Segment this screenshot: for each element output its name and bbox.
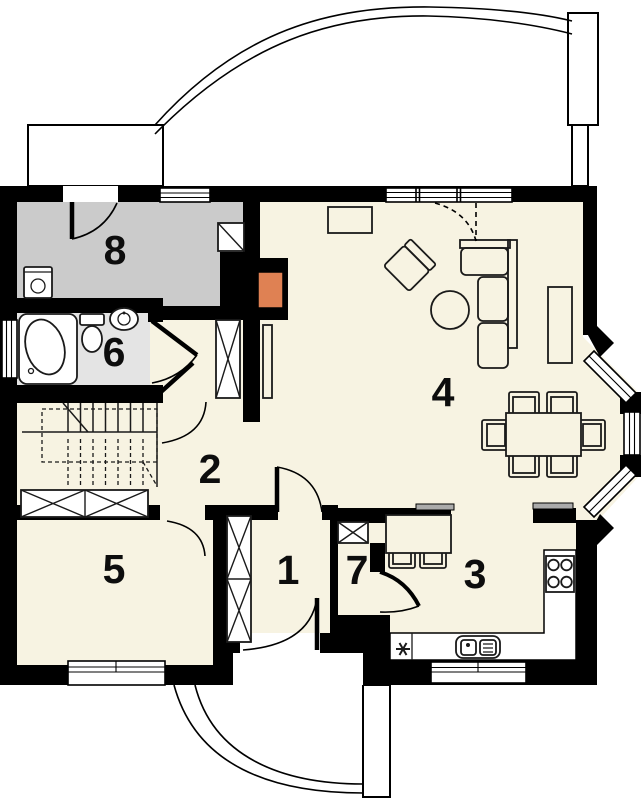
pass-shelf-right [533,503,573,509]
wall-room8-bath-divider [17,298,163,313]
wall-room7-left [330,505,338,633]
porch-pillar [363,685,390,797]
wall-right-upper [583,186,597,335]
utility-fixtures [24,267,52,298]
porch-arc-inner [195,685,363,784]
wall-room7-bottom [330,615,390,633]
washing-machine [24,267,52,298]
terrace-arc-inner [155,16,572,134]
room-label-4: 4 [432,369,455,415]
terrace-chimney-upper [568,13,598,125]
wardrobe-pantry [338,522,368,543]
floor-plan-page: 1 2 3 4 5 6 7 8 [0,0,642,800]
terrace-steps [28,125,163,186]
wall-room7-right-stub [370,543,385,572]
wardrobe-hall-column [216,320,240,398]
washbasin [110,308,138,330]
room-label-6: 6 [103,329,126,375]
room-label-7: 7 [346,547,369,593]
wall-hall-column-lower [243,320,260,422]
floor-plan-canvas: 1 2 3 4 5 6 7 8 [0,0,642,800]
wall-kitchen-top-right [533,508,576,523]
toilet [80,314,104,352]
breakfast-table [386,515,451,553]
pass-shelf-left [416,504,454,510]
room-label-2: 2 [199,446,222,492]
dining-table [506,413,581,456]
corner-shelf-room8 [218,223,244,251]
window-room4-top [386,188,512,202]
window-room8-top [160,188,210,202]
room-label-8: 8 [104,227,127,273]
wardrobe-hall-wide [21,490,148,517]
wall-bath-bottom [17,385,163,403]
terrace-arc-outer [155,7,572,125]
room-label-3: 3 [464,551,487,597]
window-kitchen-bottom [431,662,526,683]
opening-room8-entry [63,186,118,202]
wall-bath-right-stub [148,313,163,322]
room-label-1: 1 [277,547,300,593]
window-bay-right [624,412,640,455]
bathtub [19,314,77,384]
wall-left [0,186,17,685]
window-bathroom-left [2,320,17,378]
terrace-chimney-lower [572,125,588,186]
porch-arc-outer [174,685,363,793]
fireplace-insert [258,272,283,308]
stove-cooktop [546,556,574,592]
kitchen-sink [456,636,500,658]
wardrobe-vestibule [227,516,251,642]
window-room5-bottom [68,661,165,685]
entrance-recess [233,653,363,685]
room-label-5: 5 [103,546,126,592]
